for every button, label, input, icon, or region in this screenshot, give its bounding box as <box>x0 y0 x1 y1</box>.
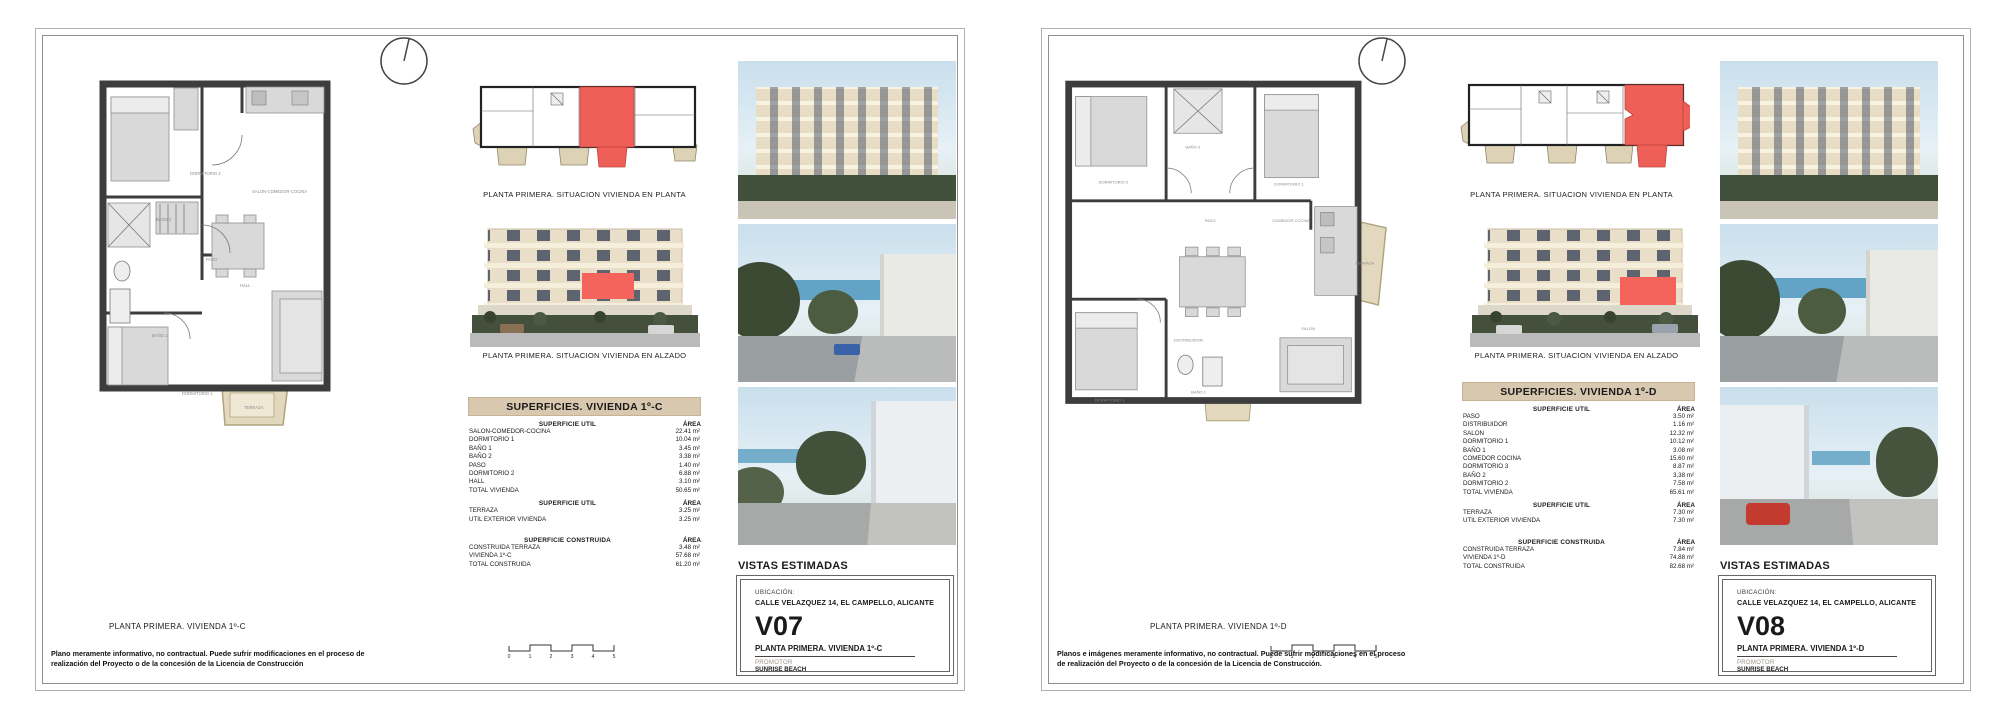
svg-text:DORMITORIO 2: DORMITORIO 2 <box>190 171 221 176</box>
svg-text:DORMITORIO 2: DORMITORIO 2 <box>1099 179 1129 184</box>
area-row-value: 3.25 m² <box>679 516 700 524</box>
area-row-label: HALL <box>469 478 484 486</box>
svg-text:BAÑO 1: BAÑO 1 <box>152 333 168 338</box>
sea-band <box>1812 451 1870 465</box>
hedge-strip <box>738 175 956 203</box>
area-row-label: DORMITORIO 3 <box>1463 463 1508 471</box>
area-row-label: PASO <box>469 462 486 470</box>
road <box>1470 333 1700 347</box>
road <box>1720 336 1938 382</box>
table-row: DORMITORIO 38.87 m² <box>1462 463 1695 471</box>
caption-situacion-planta: PLANTA PRIMERA. SITUACION VIVIENDA EN PL… <box>468 190 701 199</box>
disclaimer-text: Plano meramente informativo, no contract… <box>51 649 403 668</box>
address: CALLE VELAZQUEZ 14, EL CAMPELLO, ALICANT… <box>755 598 949 607</box>
section-area-label: ÁREA <box>667 421 701 428</box>
table-row: PASO3.50 m² <box>1462 413 1695 421</box>
table-section-header: SUPERFICIE CONSTRUIDAÁREA <box>468 537 701 544</box>
table-row: COMEDOR COCINA15.60 m² <box>1462 455 1695 463</box>
photo-street-sea-view <box>1720 224 1938 382</box>
elevation-v07 <box>470 225 700 347</box>
svg-text:0: 0 <box>508 654 511 660</box>
area-row-value: 3.38 m² <box>679 453 700 461</box>
area-row-value: 3.08 m² <box>1673 447 1694 455</box>
ground-strip <box>1720 201 1938 219</box>
plan-name: PLANTA PRIMERA. VIVIENDA 1º-D <box>1737 644 1897 657</box>
svg-text:PASO: PASO <box>1205 218 1216 223</box>
area-row-value: 10.04 m² <box>676 436 700 444</box>
area-row-value: 57.68 m² <box>676 552 700 560</box>
svg-text:4: 4 <box>1354 654 1357 660</box>
white-building <box>884 254 956 340</box>
promotor-name: SUNRISE BEACH <box>1737 666 1931 673</box>
table-body: SUPERFICIE UTILÁREAPASO3.50 m²DISTRIBUID… <box>1462 406 1695 571</box>
north-arrow-icon <box>378 35 430 87</box>
svg-text:BAÑO 2: BAÑO 2 <box>1185 145 1201 150</box>
table-row: VIVIENDA 1º-C57.68 m² <box>468 552 701 560</box>
svg-text:3: 3 <box>571 654 574 660</box>
photo-column <box>1720 61 1938 550</box>
road <box>738 503 956 545</box>
tree-mass <box>1720 260 1780 340</box>
car-shape <box>648 325 674 334</box>
area-row-value: 7.30 m² <box>1673 509 1694 517</box>
area-row-value: 8.87 m² <box>1673 463 1694 471</box>
table-section: SUPERFICIE UTILÁREAPASO3.50 m²DISTRIBUID… <box>1462 406 1695 497</box>
svg-text:TERRAZA: TERRAZA <box>1355 260 1374 265</box>
svg-text:5: 5 <box>613 654 616 660</box>
svg-text:COMEDOR COCINA: COMEDOR COCINA <box>1272 218 1310 223</box>
table-row: BAÑO 23.38 m² <box>468 453 701 461</box>
promotor-name: SUNRISE BEACH <box>755 666 949 673</box>
svg-text:PASO: PASO <box>206 257 218 262</box>
plan-name: PLANTA PRIMERA. VIVIENDA 1º-C <box>755 644 915 657</box>
table-row: BAÑO 13.45 m² <box>468 445 701 453</box>
area-row-label: TOTAL VIVIENDA <box>469 487 519 495</box>
table-title: SUPERFICIES. VIVIENDA 1º-D <box>1462 382 1695 401</box>
section-area-label: ÁREA <box>1661 406 1695 413</box>
table-row: TOTAL VIVIENDA50.65 m² <box>468 487 701 495</box>
table-row: DORMITORIO 110.12 m² <box>1462 438 1695 446</box>
svg-text:1: 1 <box>529 654 532 660</box>
key-plan-v07 <box>467 81 702 175</box>
table-section: SUPERFICIE UTILÁREASALON-COMEDOR-COCINA2… <box>468 421 701 495</box>
caption-situacion-alzado: PLANTA PRIMERA. SITUACION VIVIENDA EN AL… <box>468 351 701 360</box>
table-section: SUPERFICIE CONSTRUIDAÁREACONSTRUIDA TERR… <box>1462 539 1695 571</box>
title-block-v07: UBICACIÓN: CALLE VELAZQUEZ 14, EL CAMPEL… <box>736 575 954 676</box>
svg-text:1: 1 <box>1291 654 1294 660</box>
area-row-label: TERRAZA <box>1463 509 1492 517</box>
scale-bar: 0 1 2 3 4 5 <box>1268 638 1384 660</box>
table-row: SALON12.32 m² <box>1462 430 1695 438</box>
white-building <box>1870 250 1938 342</box>
elevation-v08 <box>1470 225 1700 347</box>
floor-plan-caption: PLANTA PRIMERA. VIVIENDA 1º-D <box>1150 622 1287 631</box>
table-row: CONSTRUIDA TERRAZA7.84 m² <box>1462 546 1695 554</box>
table-row: UTIL EXTERIOR VIVIENDA3.25 m² <box>468 516 701 524</box>
table-section-header: SUPERFICIE CONSTRUIDAÁREA <box>1462 539 1695 546</box>
area-row-value: 61.20 m² <box>676 561 700 569</box>
tree-mass <box>808 290 858 334</box>
area-row-value: 82.68 m² <box>1670 563 1694 571</box>
area-row-value: 22.41 m² <box>676 428 700 436</box>
area-row-value: 1.40 m² <box>679 462 700 470</box>
key-plan-v08 <box>1455 79 1690 173</box>
area-row-value: 7.30 m² <box>1673 517 1694 525</box>
table-section: SUPERFICIE UTILÁREATERRAZA7.30 m²UTIL EX… <box>1462 502 1695 526</box>
area-row-label: TOTAL CONSTRUIDA <box>469 561 531 569</box>
section-header-label: SUPERFICIE UTIL <box>1462 502 1661 509</box>
area-row-label: DORMITORIO 1 <box>469 436 514 444</box>
area-row-value: 3.10 m² <box>679 478 700 486</box>
table-row: TERRAZA7.30 m² <box>1462 509 1695 517</box>
section-header-label: SUPERFICIE CONSTRUIDA <box>1462 539 1661 546</box>
plan-sheet-v08: DORMITORIO 2 BAÑO 2 DORMITORIO 1 COMEDOR… <box>1041 28 1971 691</box>
section-area-label: ÁREA <box>1661 502 1695 509</box>
table-row: DORMITORIO 27.58 m² <box>1462 480 1695 488</box>
table-row: DISTRIBUIDOR1.16 m² <box>1462 421 1695 429</box>
photo-street-red-car <box>1720 387 1938 545</box>
area-row-value: 65.61 m² <box>1670 489 1694 497</box>
table-row: TOTAL CONSTRUIDA82.68 m² <box>1462 563 1695 571</box>
table-section-header: SUPERFICIE UTILÁREA <box>1462 502 1695 509</box>
svg-text:SALON-COMEDOR-COCINA: SALON-COMEDOR-COCINA <box>252 189 307 194</box>
photo-column <box>738 61 956 550</box>
area-row-label: BAÑO 1 <box>1463 447 1486 455</box>
photo-building-render <box>738 61 956 219</box>
area-row-label: SALON-COMEDOR-COCINA <box>469 428 550 436</box>
svg-text:BAÑO 1: BAÑO 1 <box>1191 390 1207 395</box>
ubicacion-label: UBICACIÓN: <box>755 589 949 596</box>
ground-strip <box>738 201 956 219</box>
photo-street-sea-view <box>738 224 956 382</box>
area-row-value: 3.38 m² <box>1673 472 1694 480</box>
svg-text:DISTRIBUIDOR: DISTRIBUIDOR <box>1174 338 1203 343</box>
tree-mass <box>1876 427 1938 497</box>
area-row-label: TOTAL CONSTRUIDA <box>1463 563 1525 571</box>
car-shape <box>1652 324 1678 333</box>
area-row-label: DORMITORIO 2 <box>1463 480 1508 488</box>
title-block-inner: UBICACIÓN: CALLE VELAZQUEZ 14, EL CAMPEL… <box>740 579 950 672</box>
photo-street-view <box>738 387 956 545</box>
table-section: SUPERFICIE UTILÁREATERRAZA3.25 m²UTIL EX… <box>468 500 701 524</box>
road <box>470 333 700 347</box>
red-car-shape <box>1746 503 1790 525</box>
highlight-elevation <box>582 273 634 299</box>
svg-text:BAÑO 2: BAÑO 2 <box>156 217 172 222</box>
table-row: UTIL EXTERIOR VIVIENDA7.30 m² <box>1462 517 1695 525</box>
area-row-label: BAÑO 1 <box>469 445 492 453</box>
area-row-value: 3.45 m² <box>679 445 700 453</box>
table-row: BAÑO 23.38 m² <box>1462 472 1695 480</box>
surfaces-table-v07: SUPERFICIES. VIVIENDA 1º-C SUPERFICIE UT… <box>468 397 701 569</box>
road <box>738 336 956 382</box>
area-row-label: DISTRIBUIDOR <box>1463 421 1507 429</box>
area-row-value: 1.16 m² <box>1673 421 1694 429</box>
section-area-label: ÁREA <box>667 500 701 507</box>
white-tower <box>876 401 956 505</box>
svg-text:4: 4 <box>592 654 595 660</box>
unit-code: V07 <box>755 613 949 639</box>
table-row: SALON-COMEDOR-COCINA22.41 m² <box>468 428 701 436</box>
area-row-value: 3.25 m² <box>679 507 700 515</box>
section-area-label: ÁREA <box>1661 539 1695 546</box>
highlight-elevation <box>1620 277 1676 305</box>
svg-text:DORMITORIO 1: DORMITORIO 1 <box>182 391 213 396</box>
table-row: BAÑO 13.08 m² <box>1462 447 1695 455</box>
svg-text:0: 0 <box>1270 654 1273 660</box>
section-header-label: SUPERFICIE UTIL <box>1462 406 1661 413</box>
svg-text:3: 3 <box>1333 654 1336 660</box>
section-header-label: SUPERFICIE UTIL <box>468 500 667 507</box>
floor-plan-v08: DORMITORIO 2 BAÑO 2 DORMITORIO 1 COMEDOR… <box>1060 69 1388 431</box>
table-row: TOTAL CONSTRUIDA61.20 m² <box>468 561 701 569</box>
area-row-value: 3.50 m² <box>1673 413 1694 421</box>
area-row-value: 50.65 m² <box>676 487 700 495</box>
svg-text:TERRAZA: TERRAZA <box>244 405 264 410</box>
building-shape <box>1738 87 1920 181</box>
area-row-value: 10.12 m² <box>1670 438 1694 446</box>
vistas-estimadas-label: VISTAS ESTIMADAS <box>1720 560 1830 572</box>
svg-text:2: 2 <box>550 654 553 660</box>
table-row: TOTAL VIVIENDA65.61 m² <box>1462 489 1695 497</box>
car-shape <box>834 344 860 355</box>
surfaces-table-v08: SUPERFICIES. VIVIENDA 1º-D SUPERFICIE UT… <box>1462 382 1695 571</box>
area-row-label: CONSTRUIDA TERRAZA <box>1463 546 1534 554</box>
area-row-label: DORMITORIO 1 <box>1463 438 1508 446</box>
area-row-label: TERRAZA <box>469 507 498 515</box>
area-row-label: COMEDOR COCINA <box>1463 455 1521 463</box>
ubicacion-label: UBICACIÓN: <box>1737 589 1931 596</box>
address: CALLE VELAZQUEZ 14, EL CAMPELLO, ALICANT… <box>1737 598 1931 607</box>
area-row-label: BAÑO 2 <box>469 453 492 461</box>
svg-text:5: 5 <box>1375 654 1378 660</box>
area-row-label: BAÑO 2 <box>1463 472 1486 480</box>
floor-plan-caption: PLANTA PRIMERA. VIVIENDA 1º-C <box>109 622 246 631</box>
area-row-label: UTIL EXTERIOR VIVIENDA <box>1463 517 1540 525</box>
area-row-value: 7.58 m² <box>1673 480 1694 488</box>
svg-text:DORMITORIO 1: DORMITORIO 1 <box>1274 181 1304 186</box>
title-block-v08: UBICACIÓN: CALLE VELAZQUEZ 14, EL CAMPEL… <box>1718 575 1936 676</box>
photo-building-render <box>1720 61 1938 219</box>
table-section-header: SUPERFICIE UTILÁREA <box>1462 406 1695 413</box>
table-row: CONSTRUIDA TERRAZA3.48 m² <box>468 544 701 552</box>
svg-text:2: 2 <box>1312 654 1315 660</box>
table-row: PASO1.40 m² <box>468 462 701 470</box>
plan-brochure-page: DORMITORIO 2 BAÑO 2 BAÑO 1 DORMITORIO 1 … <box>0 0 2000 720</box>
caption-situacion-alzado: PLANTA PRIMERA. SITUACION VIVIENDA EN AL… <box>1455 351 1698 360</box>
highlight-unit <box>1625 85 1690 167</box>
svg-text:HALL: HALL <box>240 283 251 288</box>
table-section-header: SUPERFICIE UTILÁREA <box>468 421 701 428</box>
table-title: SUPERFICIES. VIVIENDA 1º-C <box>468 397 701 416</box>
title-block-inner: UBICACIÓN: CALLE VELAZQUEZ 14, EL CAMPEL… <box>1722 579 1932 672</box>
area-row-label: VIVIENDA 1º-D <box>1463 554 1506 562</box>
area-row-value: 74.88 m² <box>1670 554 1694 562</box>
caption-situacion-planta: PLANTA PRIMERA. SITUACION VIVIENDA EN PL… <box>1455 190 1688 199</box>
car-shape <box>1496 325 1522 334</box>
table-section: SUPERFICIE CONSTRUIDAÁREACONSTRUIDA TERR… <box>468 537 701 569</box>
area-row-label: SALON <box>1463 430 1484 438</box>
area-row-value: 6.88 m² <box>679 470 700 478</box>
section-header-label: SUPERFICIE CONSTRUIDA <box>468 537 667 544</box>
table-row: HALL3.10 m² <box>468 478 701 486</box>
table-row: TERRAZA3.25 m² <box>468 507 701 515</box>
hedge-strip <box>1720 175 1938 203</box>
area-row-value: 3.48 m² <box>679 544 700 552</box>
palm-tree <box>1798 288 1846 334</box>
area-row-label: PASO <box>1463 413 1480 421</box>
area-row-label: VIVIENDA 1º-C <box>469 552 512 560</box>
area-row-label: TOTAL VIVIENDA <box>1463 489 1513 497</box>
tree-mass <box>796 431 866 495</box>
table-row: DORMITORIO 110.04 m² <box>468 436 701 444</box>
car-shape <box>500 324 524 333</box>
svg-text:SALON: SALON <box>1301 326 1315 331</box>
plan-sheet-v07: DORMITORIO 2 BAÑO 2 BAÑO 1 DORMITORIO 1 … <box>35 28 965 691</box>
area-row-label: DORMITORIO 2 <box>469 470 514 478</box>
tree-mass <box>738 262 800 340</box>
unit-code: V08 <box>1737 613 1931 639</box>
table-section-header: SUPERFICIE UTILÁREA <box>468 500 701 507</box>
section-header-label: SUPERFICIE UTIL <box>468 421 667 428</box>
building-shape <box>756 87 938 181</box>
area-row-label: UTIL EXTERIOR VIVIENDA <box>469 516 546 524</box>
vistas-estimadas-label: VISTAS ESTIMADAS <box>738 560 848 572</box>
svg-text:DORMITORIO 3: DORMITORIO 3 <box>1095 397 1125 402</box>
section-area-label: ÁREA <box>667 537 701 544</box>
white-building <box>1720 405 1804 505</box>
area-row-label: CONSTRUIDA TERRAZA <box>469 544 540 552</box>
area-row-value: 12.32 m² <box>1670 430 1694 438</box>
floor-plan-v07: DORMITORIO 2 BAÑO 2 BAÑO 1 DORMITORIO 1 … <box>94 75 336 427</box>
table-row: DORMITORIO 26.88 m² <box>468 470 701 478</box>
table-row: VIVIENDA 1º-D74.88 m² <box>1462 554 1695 562</box>
area-row-value: 15.60 m² <box>1670 455 1694 463</box>
scale-bar: 0 1 2 3 4 5 <box>506 638 622 660</box>
area-row-value: 7.84 m² <box>1673 546 1694 554</box>
table-body: SUPERFICIE UTILÁREASALON-COMEDOR-COCINA2… <box>468 421 701 569</box>
